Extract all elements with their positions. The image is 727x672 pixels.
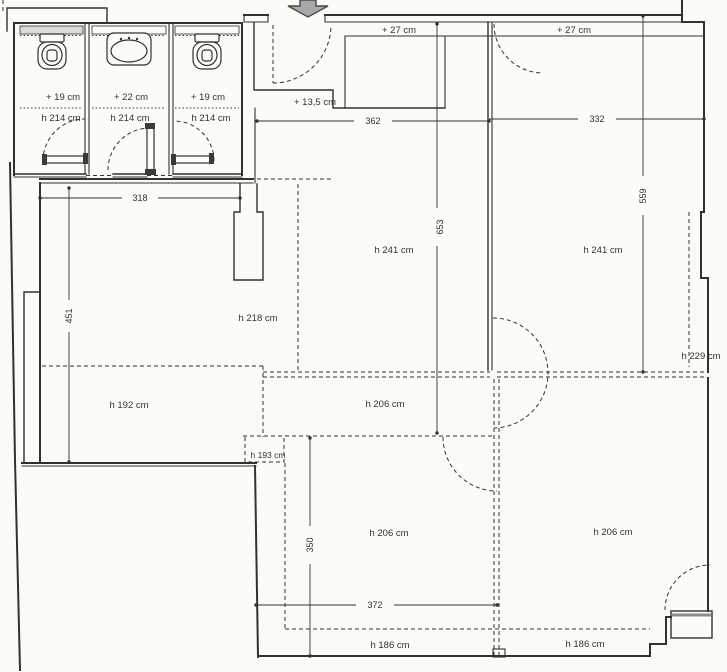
left-pilaster: [24, 292, 40, 463]
stall1-door-swing-arc: [43, 119, 85, 161]
bottom-room-divider: [494, 379, 499, 655]
label-height-mid-center: h 206 cm: [365, 399, 404, 410]
center-door-swing-arc: [493, 318, 548, 428]
sink-icon: [107, 33, 151, 65]
bottom-right-door-swing-arc: [665, 565, 710, 610]
entrance-arrow-icon: [288, 0, 328, 17]
entrance-door-swing-arc: [273, 25, 331, 83]
dim-hall-depth: 653: [435, 219, 445, 234]
zone-line-mid-right: [497, 372, 706, 377]
label-stall3-height: h 214 cm: [191, 113, 230, 124]
lower-door-swing-arc: [443, 437, 497, 491]
window-band-3: [175, 26, 239, 34]
right-wall-upper: [701, 22, 708, 372]
floor-plan-page: + 19 cm + 22 cm + 19 cm h 214 cm h 214 c…: [0, 0, 727, 672]
zone-line-h192: [42, 366, 263, 437]
label-step-top-right: + 27 cm: [557, 25, 591, 36]
label-height-lower-left: h 192 cm: [109, 400, 148, 411]
zone-line-mid-left: [263, 372, 490, 377]
zone-line-h186: [285, 463, 650, 629]
top-right-corner: [682, 0, 704, 22]
dim-right-room-depth: 559: [638, 188, 648, 203]
entry-hall-walls: [255, 36, 445, 183]
dim-left-room-depth: 451: [64, 308, 74, 323]
dim-bottom-room-width: 372: [367, 600, 382, 610]
outer-left-wall: [10, 163, 20, 670]
label-step-top-left: + 27 cm: [382, 25, 416, 36]
label-height-strip-left: h 186 cm: [370, 640, 409, 651]
lower-left-wall: [255, 466, 258, 657]
toilet-icon: [193, 34, 221, 69]
label-height-bottom-right: h 206 cm: [593, 527, 632, 538]
stall3-door-swing-arc: [174, 121, 214, 161]
label-height-bottom-center: h 206 cm: [369, 528, 408, 539]
toilet-icon: [38, 34, 66, 69]
label-stall1-height: h 214 cm: [41, 113, 80, 124]
fixtures: [38, 33, 221, 175]
dim-hall-right-width: 332: [589, 114, 604, 124]
walls: [3, 0, 712, 670]
label-stall2-offset: + 22 cm: [114, 92, 148, 103]
label-stall2-height: h 214 cm: [110, 113, 149, 124]
label-step-entry: + 13,5 cm: [294, 97, 336, 108]
label-height-right-edge: h 229 cm: [681, 351, 720, 362]
dimension-lines: [38, 14, 705, 657]
label-stall3-offset: + 19 cm: [191, 92, 225, 103]
label-height-hall-left: h 241 cm: [374, 245, 413, 256]
label-stall1-offset: + 19 cm: [46, 92, 80, 103]
right-room-door-swing-arc: [494, 24, 543, 73]
dim-hall-left-width: 362: [365, 116, 380, 126]
dim-corridor-width: 318: [132, 193, 147, 203]
label-height-strip-right: h 186 cm: [565, 639, 604, 650]
door-leaves: [42, 123, 214, 175]
floor-plan-canvas: + 19 cm + 22 cm + 19 cm h 214 cm h 214 c…: [0, 0, 727, 672]
label-height-mid-left: h 218 cm: [238, 313, 277, 324]
stall2-door-swing-arc: [108, 128, 150, 170]
window-band-1: [20, 26, 83, 34]
label-height-niche: h 193 cm: [251, 450, 286, 460]
dim-bottom-room-depth: 350: [305, 537, 315, 552]
bottom-wall: [258, 617, 671, 656]
label-height-hall-right: h 241 cm: [583, 245, 622, 256]
